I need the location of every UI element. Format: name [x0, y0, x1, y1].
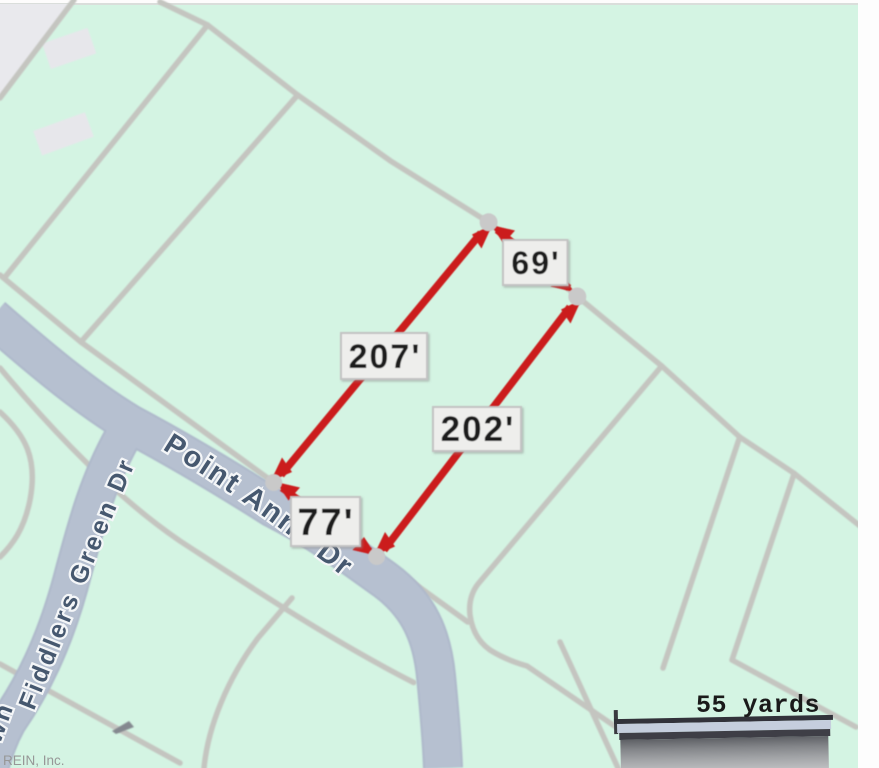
svg-text:207': 207' [349, 338, 422, 376]
svg-text:REIN, Inc.: REIN, Inc. [3, 753, 65, 768]
svg-text:55 yards: 55 yards [696, 691, 820, 720]
svg-text:77': 77' [297, 502, 354, 544]
svg-text:69': 69' [511, 245, 560, 281]
svg-text:202': 202' [441, 410, 516, 449]
